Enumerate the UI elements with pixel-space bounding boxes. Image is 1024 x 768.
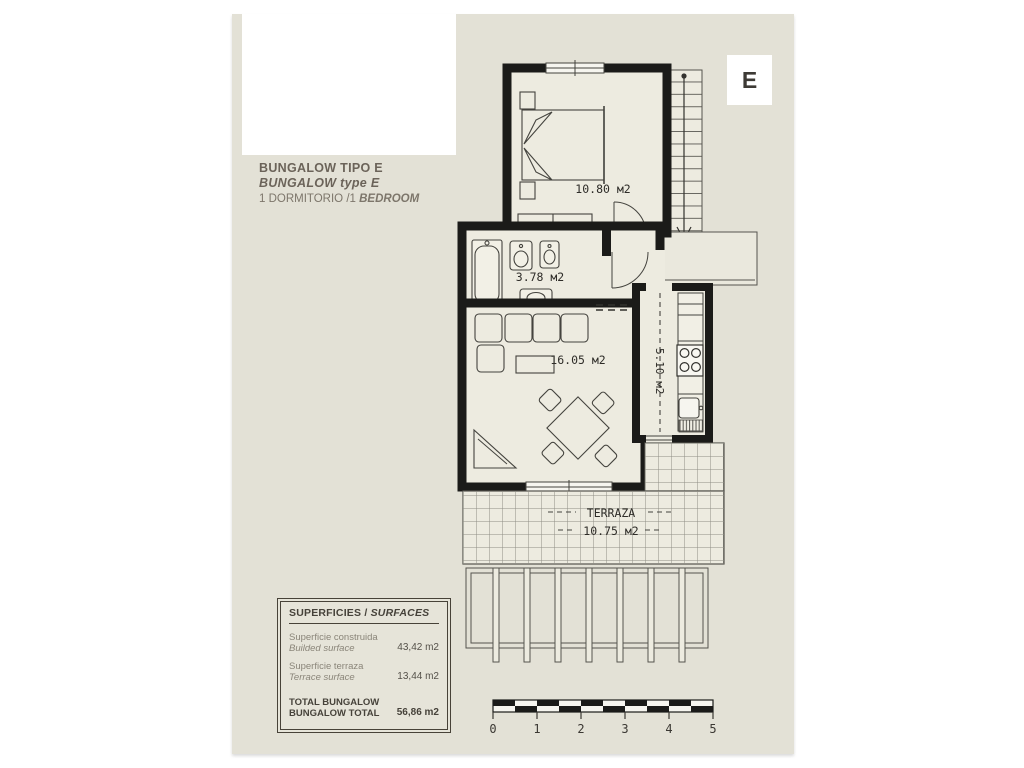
total-label-line2: BUNGALOW TOTAL xyxy=(289,708,379,719)
toilet xyxy=(510,241,532,270)
scale-tick-4: 4 xyxy=(665,722,672,736)
nightstand-top xyxy=(520,92,535,109)
living-area-label: 16.05 м2 xyxy=(550,353,605,367)
bathroom-area-label: 3.78 м2 xyxy=(516,270,564,284)
bedroom: 10.80 м2 xyxy=(507,60,667,238)
surfaces-table: SUPERFICIES / SURFACES Superficie constr… xyxy=(277,598,451,733)
stair-arrow-start xyxy=(681,73,686,78)
scale-tick-3: 3 xyxy=(621,722,628,736)
row-label-en: Builded surface xyxy=(289,643,378,654)
bathtub xyxy=(472,240,502,306)
scale-tick-2: 2 xyxy=(577,722,584,736)
row-value: 43,42 m2 xyxy=(397,642,439,654)
table-row: Superficie construidaBuilded surface 43,… xyxy=(289,632,439,654)
bath-hall-divider xyxy=(602,226,611,256)
page: BUNGALOW TIPO E BUNGALOW type E 1 DORMIT… xyxy=(0,0,1024,768)
kitchen-sink xyxy=(679,398,703,418)
scale-tick-0: 0 xyxy=(489,722,496,736)
terrace-name-label: TERRAZA xyxy=(587,506,636,520)
row-label: Superficie terrazaTerrace surface xyxy=(289,661,363,683)
bidet xyxy=(540,241,559,268)
row-label-en: Terrace surface xyxy=(289,672,363,683)
total-label-line1: TOTAL BUNGALOW xyxy=(289,697,379,708)
nightstand-bottom xyxy=(520,182,535,199)
kitchen-top-opening xyxy=(646,281,672,291)
surfaces-header: SUPERFICIES / SURFACES xyxy=(289,607,439,624)
total-value: 56,86 m2 xyxy=(397,707,439,719)
table-total-row: TOTAL BUNGALOWBUNGALOW TOTAL 56,86 m2 xyxy=(289,697,439,719)
table-row: Superficie terrazaTerrace surface 13,44 … xyxy=(289,661,439,683)
kitchen-area-label: 5.10 м2 xyxy=(653,348,666,394)
row-label: Superficie construidaBuilded surface xyxy=(289,632,378,654)
kitchen-drainer xyxy=(679,420,703,432)
total-label: TOTAL BUNGALOWBUNGALOW TOTAL xyxy=(289,697,379,719)
pergola xyxy=(466,568,708,662)
scale-bar: 0 1 2 3 4 5 xyxy=(489,700,716,736)
bedroom-area-label: 10.80 м2 xyxy=(575,182,630,196)
kitchen: 5.10 м2 xyxy=(636,281,709,443)
surfaces-table-inner: SUPERFICIES / SURFACES Superficie constr… xyxy=(280,601,448,730)
row-label-es: Superficie terraza xyxy=(289,661,363,672)
surfaces-header-en: SURFACES xyxy=(371,607,430,619)
bed xyxy=(522,106,604,184)
coffee-table xyxy=(516,356,554,373)
kitchen-bottom-opening xyxy=(646,433,672,443)
surfaces-header-es: SUPERFICIES / xyxy=(289,607,371,619)
scale-tick-5: 5 xyxy=(709,722,716,736)
row-label-es: Superficie construida xyxy=(289,632,378,643)
scale-tick-1: 1 xyxy=(533,722,540,736)
row-value: 13,44 m2 xyxy=(397,671,439,683)
terrace-area-label: 10.75 м2 xyxy=(583,524,638,538)
stove xyxy=(677,345,703,376)
living-room: 16.05 м2 xyxy=(462,303,645,494)
floor-plan-svg: 10.80 м2 xyxy=(0,0,1024,768)
entry-porch xyxy=(660,232,757,285)
